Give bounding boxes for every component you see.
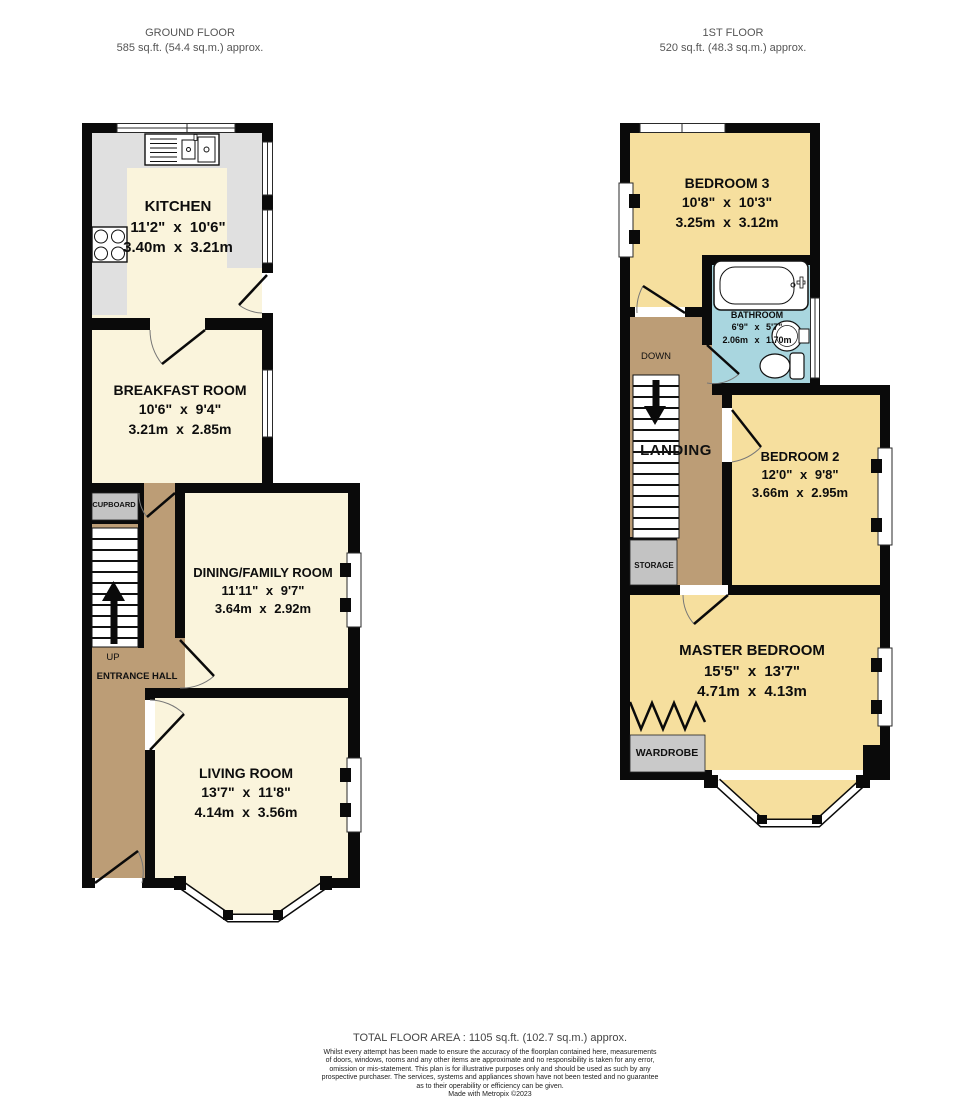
master-bedroom-label: MASTER BEDROOM 15'5" x 13'7" 4.71m x 4.1… xyxy=(679,641,825,703)
room-name: KITCHEN xyxy=(123,197,233,218)
room-name: LIVING ROOM xyxy=(195,764,298,783)
room-dims-metric: 4.71m x 4.13m xyxy=(679,682,825,703)
kitchen-hob-icon xyxy=(92,227,127,262)
bathtub-icon xyxy=(714,261,808,310)
first-floor-header: 1ST FLOOR 520 sq.ft. (48.3 sq.m.) approx… xyxy=(660,26,807,56)
room-dims-metric: 3.40m x 3.21m xyxy=(123,238,233,259)
room-dims-metric: 3.25m x 3.12m xyxy=(676,213,779,232)
room-dims-imperial: 11'11" x 9'7" xyxy=(193,582,332,600)
breakfast-room-label: BREAKFAST ROOM 10'6" x 9'4" 3.21m x 2.85… xyxy=(114,381,247,439)
room-name: BEDROOM 3 xyxy=(676,174,779,193)
kitchen-sink-icon xyxy=(145,134,219,165)
down-label: DOWN xyxy=(641,351,671,362)
gf-staircase xyxy=(92,528,138,647)
credit-line: Made with Metropix ©2023 xyxy=(322,1091,659,1099)
ground-floor-header: GROUND FLOOR 585 sq.ft. (54.4 sq.m.) app… xyxy=(117,26,264,56)
room-dims-imperial: 12'0" x 9'8" xyxy=(752,466,848,484)
room-name: DINING/FAMILY ROOM xyxy=(193,564,332,582)
disclaimer-line: as to their operability or efficiency ca… xyxy=(322,1083,659,1091)
room-dims-imperial: 13'7" x 11'8" xyxy=(195,783,298,802)
disclaimer-line: omission or mis-statement. This plan is … xyxy=(322,1066,659,1074)
floorplan-canvas xyxy=(0,0,980,1102)
room-dims-imperial: 6'9" x 5'7" xyxy=(722,321,791,333)
room-dims-metric: 3.21m x 2.85m xyxy=(114,420,247,439)
room-dims-imperial: 15'5" x 13'7" xyxy=(679,662,825,683)
toilet-icon xyxy=(760,353,804,379)
wardrobe-label: WARDROBE xyxy=(636,747,698,759)
disclaimer-line: of doors, windows, rooms and any other i… xyxy=(322,1057,659,1065)
kitchen-label: KITCHEN 11'2" x 10'6" 3.40m x 3.21m xyxy=(123,197,233,259)
bedroom2-label: BEDROOM 2 12'0" x 9'8" 3.66m x 2.95m xyxy=(752,448,848,502)
total-floor-area: TOTAL FLOOR AREA : 1105 sq.ft. (102.7 sq… xyxy=(353,1032,627,1044)
floor-area: 520 sq.ft. (48.3 sq.m.) approx. xyxy=(660,41,807,56)
floorplan-page: { "ground_floor": { "title": "GROUND FLO… xyxy=(0,0,980,1102)
up-label: UP xyxy=(106,652,119,663)
room-name: MASTER BEDROOM xyxy=(679,641,825,662)
room-dims-imperial: 10'8" x 10'3" xyxy=(676,193,779,212)
kitchen-counter-left xyxy=(92,133,127,315)
floor-title: 1ST FLOOR xyxy=(660,26,807,41)
room-dims-metric: 3.64m x 2.92m xyxy=(193,600,332,618)
floor-area: 585 sq.ft. (54.4 sq.m.) approx. xyxy=(117,41,264,56)
room-dims-metric: 2.06m x 1.70m xyxy=(722,334,791,346)
living-room-label: LIVING ROOM 13'7" x 11'8" 4.14m x 3.56m xyxy=(195,764,298,822)
disclaimer: Whilst every attempt has been made to en… xyxy=(322,1049,659,1099)
room-name: BATHROOM xyxy=(722,309,791,321)
floor-title: GROUND FLOOR xyxy=(117,26,264,41)
disclaimer-line: prospective purchaser. The services, sys… xyxy=(322,1074,659,1082)
landing-label: LANDING xyxy=(640,442,712,459)
room-dims-metric: 3.66m x 2.95m xyxy=(752,484,848,502)
storage-label: STORAGE xyxy=(634,561,673,570)
disclaimer-line: Whilst every attempt has been made to en… xyxy=(322,1049,659,1057)
cupboard-label: CUPBOARD xyxy=(92,500,135,509)
room-dims-imperial: 10'6" x 9'4" xyxy=(114,400,247,419)
room-name: BREAKFAST ROOM xyxy=(114,381,247,400)
room-dims-metric: 4.14m x 3.56m xyxy=(195,803,298,822)
dining-room-label: DINING/FAMILY ROOM 11'11" x 9'7" 3.64m x… xyxy=(193,564,332,618)
room-dims-imperial: 11'2" x 10'6" xyxy=(123,218,233,239)
bedroom3-label: BEDROOM 3 10'8" x 10'3" 3.25m x 3.12m xyxy=(676,174,779,232)
entrance-hall-label: ENTRANCE HALL xyxy=(97,671,178,682)
bathroom-label: BATHROOM 6'9" x 5'7" 2.06m x 1.70m xyxy=(722,309,791,346)
room-name: BEDROOM 2 xyxy=(752,448,848,466)
